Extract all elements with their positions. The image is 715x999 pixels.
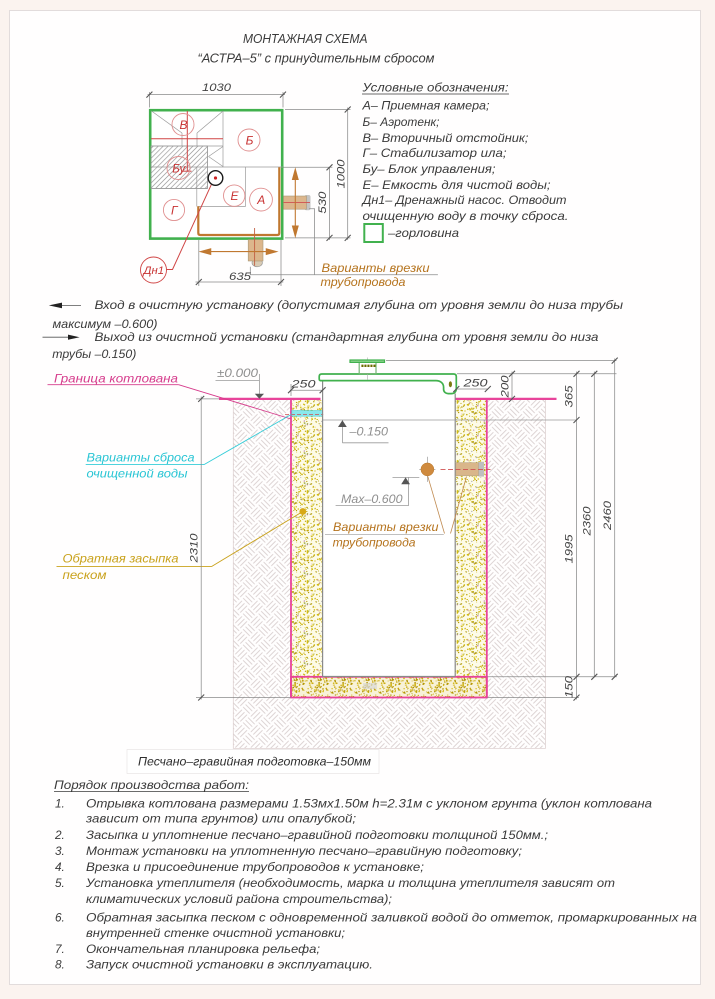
svg-text:Граница котлована: Граница котлована: [54, 372, 178, 386]
svg-text:очищенной воды: очищенной воды: [87, 467, 188, 481]
svg-text:2460: 2460: [602, 500, 614, 531]
svg-text:Песчано–гравийная подготовка–1: Песчано–гравийная подготовка–150мм: [138, 755, 371, 769]
svg-text:–горловина: –горловина: [387, 226, 460, 240]
svg-text:250: 250: [290, 379, 316, 391]
svg-text:Монтаж установки на уплотненну: Монтаж установки на уплотненную песчано–…: [86, 844, 522, 858]
svg-text:Г– Стабилизатор ила;: Г– Стабилизатор ила;: [363, 146, 507, 160]
svg-text:2.: 2.: [54, 828, 65, 842]
svg-text:8.: 8.: [55, 958, 65, 972]
svg-text:635: 635: [229, 271, 252, 283]
svg-text:7.: 7.: [55, 942, 65, 956]
svg-text:А– Приемная камера;: А– Приемная камера;: [361, 98, 489, 112]
svg-text:трубы –0.150): трубы –0.150): [52, 347, 136, 361]
svg-text:Обратная засыпка: Обратная засыпка: [63, 552, 179, 566]
svg-text:В– Вторичный отстойник;: В– Вторичный отстойник;: [363, 131, 529, 145]
svg-text:Порядок производства работ:: Порядок производства работ:: [54, 778, 249, 792]
svg-text:Отрывка котлована размерами 1.: Отрывка котлована размерами 1.53мх1.50м …: [86, 797, 652, 811]
svg-text:Варианты сброса: Варианты сброса: [87, 451, 195, 465]
svg-text:Е: Е: [230, 189, 239, 203]
svg-text:2360: 2360: [582, 505, 594, 536]
svg-text:–0.150: –0.150: [348, 427, 388, 439]
svg-text:Е– Емкость для чистой воды;: Е– Емкость для чистой воды;: [363, 178, 551, 192]
svg-text:зависит от типа грунтов) или о: зависит от типа грунтов) или опалубкой;: [85, 812, 356, 826]
svg-text:Установка утеплителя (необходи: Установка утеплителя (необходимость, мар…: [85, 876, 615, 890]
svg-text:2310: 2310: [188, 532, 200, 563]
svg-text:МОНТАЖНАЯ СХЕМА: МОНТАЖНАЯ СХЕМА: [243, 32, 368, 46]
svg-text:трубопровода: трубопровода: [321, 275, 406, 289]
svg-text:Варианты врезки: Варианты врезки: [322, 261, 430, 275]
svg-text:1000: 1000: [335, 158, 347, 188]
svg-text:150: 150: [564, 675, 576, 698]
svg-text:Окончательная планировка релье: Окончательная планировка рельефа;: [86, 942, 320, 956]
svg-text:очищенную воду в точку сброса.: очищенную воду в точку сброса.: [363, 209, 569, 223]
svg-text:6.: 6.: [55, 911, 65, 925]
svg-text:трубопровода: трубопровода: [333, 536, 416, 550]
svg-text:Врезка и присоединение трубопр: Врезка и присоединение трубопроводов к у…: [86, 860, 424, 874]
svg-text:максимум –0.600): максимум –0.600): [53, 317, 158, 331]
svg-text:Б– Аэротенк;: Б– Аэротенк;: [363, 115, 440, 129]
svg-text:внутренней стенке очистной уст: внутренней стенке очистной установки;: [86, 926, 345, 940]
svg-text:530: 530: [317, 191, 329, 214]
svg-text:Засыпка и уплотнение песчано–г: Засыпка и уплотнение песчано–гравийной п…: [86, 828, 548, 842]
svg-text:Max–0.600: Max–0.600: [341, 494, 403, 506]
svg-text:1.: 1.: [55, 797, 65, 811]
svg-text:Б: Б: [246, 134, 254, 148]
svg-text:Условные обозначения:: Условные обозначения:: [361, 81, 508, 95]
svg-text:Дн1: Дн1: [143, 265, 165, 277]
svg-text:1030: 1030: [202, 82, 232, 94]
svg-text:250: 250: [462, 378, 488, 390]
svg-text:Вход в очистную установку (доп: Вход в очистную установку (допустимая гл…: [95, 298, 624, 312]
svg-text:4.: 4.: [55, 860, 65, 874]
svg-text:1995: 1995: [564, 533, 576, 563]
svg-text:3.: 3.: [55, 844, 65, 858]
svg-text:А: А: [256, 193, 265, 207]
svg-text:Обратная засыпка песком с одно: Обратная засыпка песком с одновременной …: [86, 911, 697, 925]
svg-text:±0.000: ±0.000: [217, 368, 259, 380]
svg-text:365: 365: [564, 384, 576, 407]
svg-text:200: 200: [499, 374, 511, 398]
svg-text:5.: 5.: [55, 876, 65, 890]
svg-text:песком: песком: [63, 568, 107, 582]
svg-text:Бу: Бу: [172, 164, 186, 176]
svg-text:Дн1– Дренажный насос. Отводит: Дн1– Дренажный насос. Отводит: [360, 193, 566, 207]
svg-text:Запуск очистной установки в эк: Запуск очистной установки в эксплуатацию…: [86, 958, 373, 972]
svg-text:“АСТРА–5” с принудительным сбр: “АСТРА–5” с принудительным сбросом: [198, 51, 435, 66]
svg-text:Бу– Блок управления;: Бу– Блок управления;: [363, 162, 496, 176]
svg-text:В: В: [179, 118, 187, 132]
svg-text:Выход из очистной установки (с: Выход из очистной установки (стандартная…: [95, 330, 599, 344]
svg-text:климатических условий района с: климатических условий района строительст…: [86, 892, 392, 906]
svg-text:Варианты врезки: Варианты врезки: [333, 520, 439, 534]
